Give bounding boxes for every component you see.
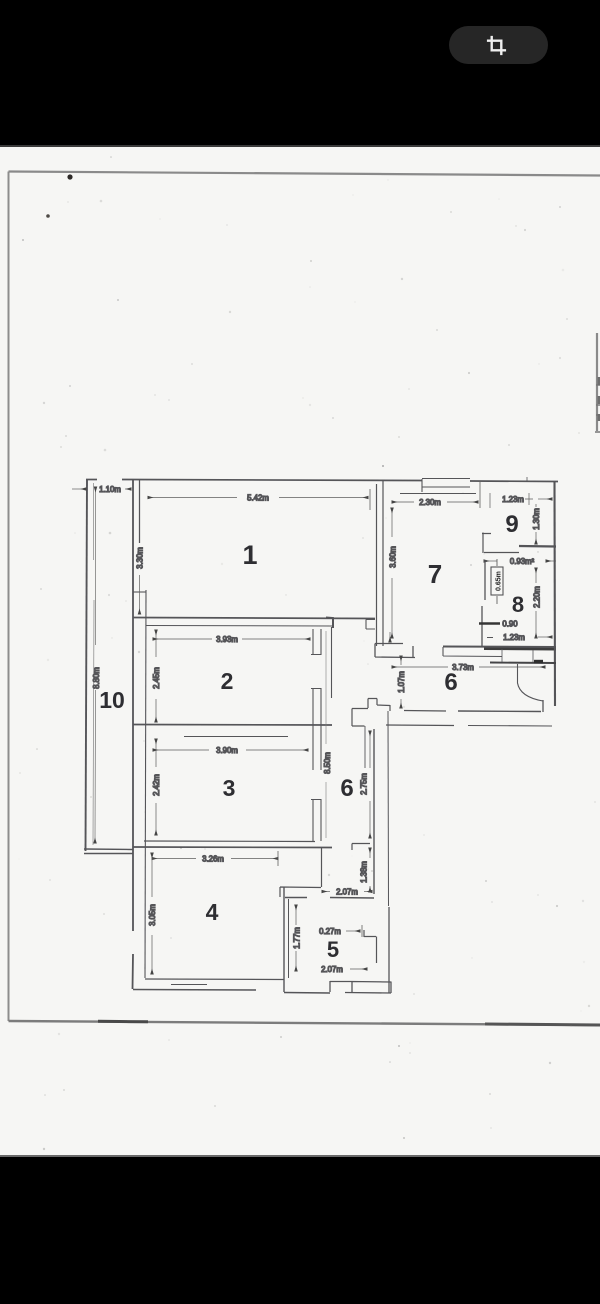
svg-text:3.05m: 3.05m [148,904,157,926]
svg-text:2.75m: 2.75m [360,773,369,795]
svg-text:3.93m: 3.93m [216,635,238,644]
svg-text:2.45m: 2.45m [152,667,161,689]
svg-text:9: 9 [505,511,518,538]
svg-text:7: 7 [428,559,442,589]
svg-text:3.30m: 3.30m [136,547,145,569]
svg-text:1.38m: 1.38m [360,861,369,883]
svg-text:0.93m²: 0.93m² [510,557,535,566]
svg-text:1.23m: 1.23m [503,633,525,642]
svg-text:1: 1 [242,540,257,570]
svg-text:2.42m: 2.42m [152,774,161,796]
svg-text:1.23m: 1.23m [502,495,524,504]
svg-text:0.65m: 0.65m [496,571,503,591]
svg-text:10: 10 [99,687,125,713]
svg-text:2: 2 [221,668,234,694]
svg-text:3: 3 [223,775,236,801]
svg-text:1.07m: 1.07m [397,671,406,693]
svg-text:5: 5 [327,937,339,962]
svg-text:2.07m: 2.07m [321,965,343,974]
svg-text:5.42m: 5.42m [247,494,269,503]
svg-text:1.30m: 1.30m [532,508,541,530]
svg-text:4: 4 [206,899,219,925]
svg-text:6: 6 [444,669,457,696]
svg-text:8.80m: 8.80m [92,667,101,689]
svg-text:3.26m: 3.26m [202,855,224,864]
svg-text:3.60m: 3.60m [389,546,398,568]
svg-text:2.20m: 2.20m [533,586,542,608]
svg-text:2.07m: 2.07m [336,888,358,897]
svg-text:8: 8 [512,592,524,617]
svg-text:0.27m: 0.27m [319,927,341,936]
svg-text:0.90: 0.90 [502,620,518,629]
svg-text:3.90m: 3.90m [216,746,238,755]
svg-text:2.30m: 2.30m [419,498,441,507]
svg-text:1.10m: 1.10m [99,485,121,494]
svg-text:6: 6 [340,775,353,802]
svg-text:1.77m: 1.77m [293,927,302,949]
svg-text:8.50m: 8.50m [323,752,332,774]
